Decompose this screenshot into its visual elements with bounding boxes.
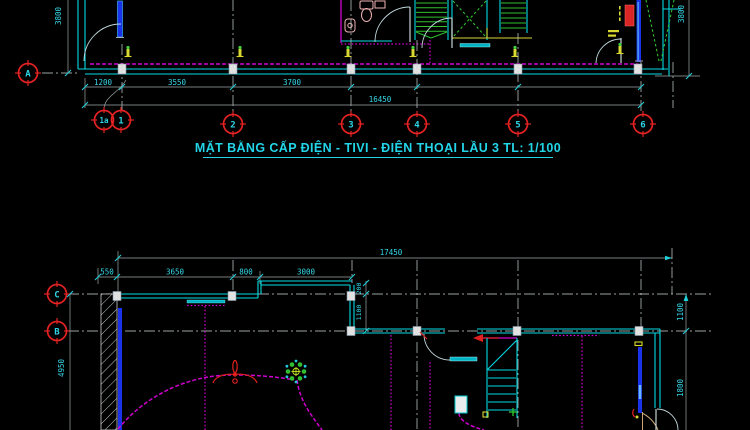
right-wall-door (656, 409, 678, 430)
dims-step-lower: 200 1100 (355, 280, 369, 334)
grid-bubble-A: A (15, 60, 41, 86)
sconce-icon (125, 43, 624, 57)
interior-door (420, 332, 477, 361)
grid-lines-upper (42, 0, 673, 114)
grid-bubble-5: 5 (505, 111, 531, 137)
dim-right-vertical: 1100 (676, 302, 685, 321)
dim-step: 1100 (355, 305, 363, 321)
dimensions-lower-total: 17450 (115, 248, 672, 294)
dim-total: 16450 (369, 95, 392, 104)
svg-text:MẶT BẰNG CẤP ĐIỆN - TIVI - ĐIỆ: MẶT BẰNG CẤP ĐIỆN - TIVI - ĐIỆN THOẠI LẦ… (195, 140, 561, 155)
stair-treads (416, 3, 447, 38)
dimensions-upper: 1200 3550 3700 16450 3800 3800 (54, 0, 700, 108)
grid-bubbles-upper: A 1a 1 2 3 (15, 60, 656, 137)
elevator-shaft (452, 0, 532, 40)
upper-plan: 1200 3550 3700 16450 3800 3800 A (15, 0, 700, 158)
grid-bubble-1: 1 (112, 107, 135, 133)
door-leaf-rect (455, 396, 467, 413)
door-sill (450, 357, 477, 361)
grid-bubble-6: 6 (630, 111, 656, 137)
grid-bubble-3: 3 (338, 111, 364, 137)
grid-lines-lower (68, 260, 712, 430)
svg-text:5: 5 (515, 121, 520, 131)
wire-curve (459, 413, 484, 430)
svg-text:2: 2 (230, 121, 235, 131)
wire-curve (297, 380, 322, 430)
dim-left-vertical: 3800 (54, 6, 63, 25)
fixture-icon (375, 1, 385, 8)
dims-right-lower: 1100 1800 (676, 294, 689, 430)
sink-icon (345, 19, 355, 32)
dim-bay: 800 (239, 268, 253, 277)
dim-bay: 1200 (94, 78, 113, 87)
staircase-lower (473, 334, 517, 418)
dim-total: 17450 (380, 248, 403, 257)
wire-curve (118, 375, 231, 429)
wall-duct-blue (118, 308, 122, 430)
window-bar (187, 300, 225, 306)
window-sill (460, 44, 490, 48)
grid-bubble-4: 4 (404, 111, 430, 137)
dim-bay: 3700 (283, 78, 302, 87)
svg-text:3: 3 (348, 121, 353, 131)
dim-right-vertical: 1800 (676, 378, 685, 397)
void-dashes (646, 0, 659, 61)
right-door-arc (596, 39, 621, 63)
svg-text:4: 4 (414, 121, 420, 131)
dim-bay: 3650 (166, 268, 185, 277)
bathroom-door-arc (375, 7, 410, 42)
svg-text:C: C (54, 291, 59, 301)
grid-bubble-2: 2 (220, 111, 246, 137)
stair-treads (488, 370, 516, 410)
dim-left-vertical: 4950 (57, 358, 66, 377)
svg-text:A: A (25, 70, 31, 80)
panel-label-marks (608, 6, 621, 37)
dim-right-vertical: 3800 (677, 4, 686, 23)
right-riser (633, 342, 658, 430)
ceiling-fan-icon (213, 361, 257, 384)
svg-text:6: 6 (640, 121, 645, 131)
grid-bubble-1a: 1a (91, 107, 114, 133)
dim-bay: 3550 (168, 78, 187, 87)
electrical-panel-area (596, 0, 674, 63)
dim-bay: 3000 (297, 268, 316, 277)
wiring-lower (118, 306, 597, 430)
toilet-icon (360, 1, 373, 9)
electrical-panel (625, 5, 634, 26)
cad-canvas: 1200 3550 3700 16450 3800 3800 A (0, 0, 750, 430)
plan-title: MẶT BẰNG CẤP ĐIỆN - TIVI - ĐIỆN THOẠI LẦ… (195, 140, 561, 158)
riser-duct (637, 0, 642, 62)
stair-direction-arrow (473, 334, 483, 342)
hatched-wall (101, 294, 117, 430)
dim-left-lower: 4950 (57, 291, 73, 430)
svg-text:1a: 1a (99, 116, 109, 125)
entry-door (84, 1, 124, 61)
svg-text:B: B (54, 328, 60, 338)
chandelier-icon (286, 360, 307, 384)
lower-plan: 17450 550 3650 800 3000 (44, 248, 712, 430)
grid-bubble-C: C (44, 281, 70, 307)
floor-plan-drawing: 1200 3550 3700 16450 3800 3800 A (0, 0, 750, 430)
door-swing-arc (84, 24, 121, 61)
stair-treads-right (500, 0, 527, 33)
dim-bay: 550 (100, 268, 114, 277)
svg-text:1: 1 (118, 117, 123, 127)
grid-bubble-B: B (44, 318, 70, 344)
dim-step: 200 (355, 283, 363, 295)
